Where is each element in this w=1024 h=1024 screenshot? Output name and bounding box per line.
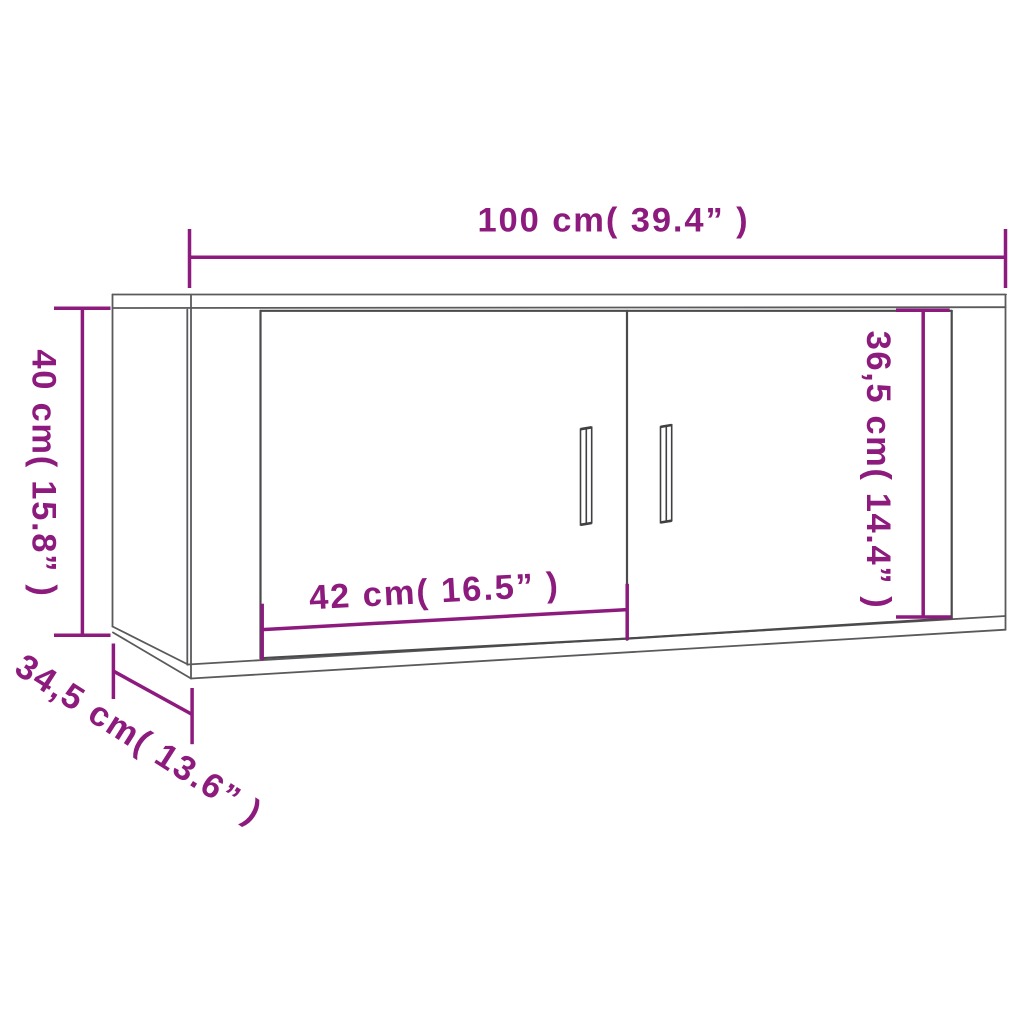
svg-text:100 cm( 39.4” ): 100 cm( 39.4” ) (477, 201, 749, 239)
svg-text:36,5 cm( 14.4” ): 36,5 cm( 14.4” ) (859, 331, 897, 610)
svg-text:40 cm( 15.8” ): 40 cm( 15.8” ) (25, 349, 63, 597)
